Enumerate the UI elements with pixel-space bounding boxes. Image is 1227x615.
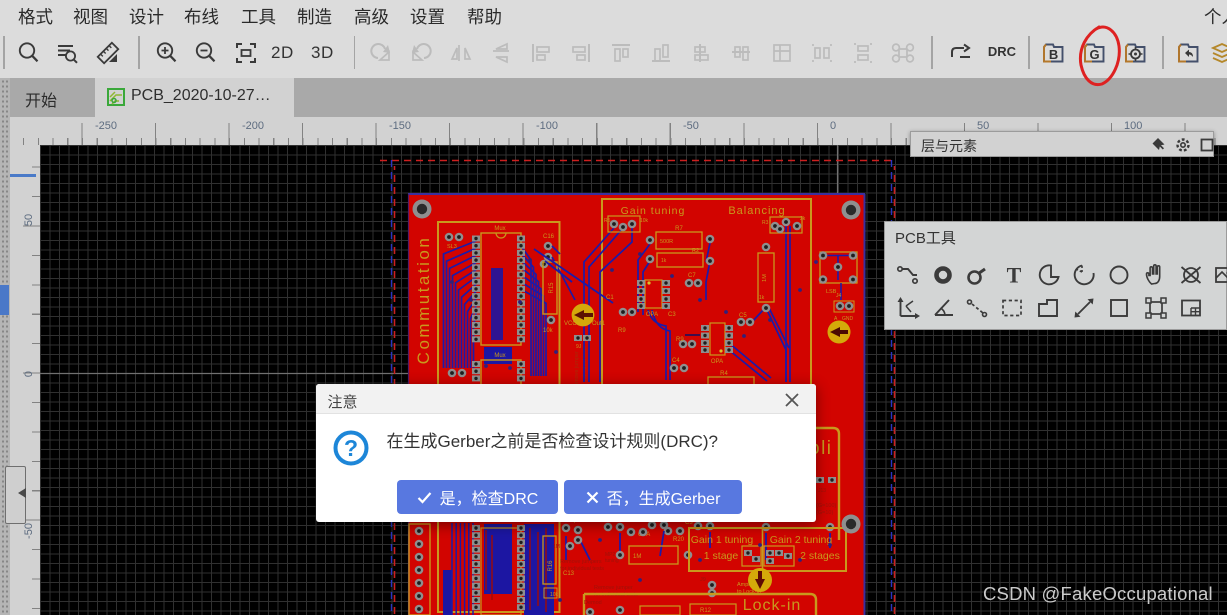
svg-text:R15: R15	[549, 282, 555, 294]
svg-text:R7: R7	[675, 226, 683, 232]
svg-text:?: ?	[343, 435, 357, 461]
svg-text:(G=100): (G=100)	[816, 503, 836, 509]
svg-text:10k: 10k	[640, 218, 649, 224]
svg-text:C3: C3	[668, 312, 676, 318]
svg-text:J13: J13	[818, 488, 826, 494]
svg-text:1M: 1M	[633, 554, 641, 560]
svg-text:C16: C16	[543, 234, 555, 240]
svg-text:R5: R5	[604, 218, 611, 224]
svg-text:1M: 1M	[762, 274, 768, 282]
svg-text:R4: R4	[720, 371, 728, 377]
svg-text:R3: R3	[762, 220, 769, 226]
svg-text:(G=10): (G=10)	[816, 510, 833, 516]
svg-text:2k: 2k	[800, 216, 806, 222]
svg-text:Balancing: Balancing	[728, 205, 785, 217]
svg-text:Gain 1 tuning: Gain 1 tuning	[691, 534, 754, 546]
svg-text:10k: 10k	[550, 592, 559, 598]
svg-text:OPA: OPA	[646, 312, 658, 318]
svg-text:Out1: Out1	[592, 321, 606, 327]
svg-text:Remove jumper: Remove jumper	[594, 585, 633, 591]
svg-text:R2: R2	[692, 248, 699, 254]
svg-text:VCC: VCC	[564, 321, 577, 327]
svg-text:Ampl: Ampl	[737, 582, 750, 588]
svg-text:1k: 1k	[661, 258, 667, 264]
svg-text:C13: C13	[563, 571, 575, 577]
svg-text:GND: GND	[842, 316, 854, 322]
svg-text:Demod: Demod	[584, 600, 602, 606]
svg-text:9J: 9J	[576, 344, 582, 350]
svg-text:Lock-in: Lock-in	[743, 597, 802, 614]
svg-text:SL3: SL3	[447, 244, 457, 250]
svg-text:OPA: OPA	[711, 359, 723, 365]
svg-text:1k: 1k	[759, 295, 765, 301]
svg-text:T: T	[1007, 263, 1022, 288]
svg-text:Commutation: Commutation	[414, 236, 433, 365]
svg-text:R16: R16	[548, 560, 554, 572]
svg-text:2 stages: 2 stages	[800, 550, 840, 562]
svg-text:J9: J9	[700, 577, 706, 583]
svg-text:C1: C1	[606, 295, 614, 301]
svg-text:R9: R9	[676, 337, 684, 343]
svg-text:Mux: Mux	[494, 353, 505, 359]
svg-text:B: B	[1049, 47, 1058, 62]
svg-text:C4: C4	[672, 358, 680, 364]
svg-text:C7: C7	[688, 273, 696, 279]
svg-text:500R: 500R	[660, 239, 673, 245]
svg-text:R9: R9	[618, 328, 626, 334]
svg-text:Mux: Mux	[494, 226, 505, 232]
svg-text:1 stage: 1 stage	[704, 550, 739, 562]
svg-text:Gain tuning: Gain tuning	[621, 205, 686, 217]
svg-text:tuning: tuning	[605, 558, 619, 564]
svg-text:10k: 10k	[543, 328, 554, 334]
svg-text:R20: R20	[673, 537, 685, 543]
svg-text:1M: 1M	[553, 544, 560, 550]
svg-text:R12: R12	[700, 608, 712, 614]
svg-text:Gain 2 tuning: Gain 2 tuning	[770, 534, 833, 546]
svg-text:J4: J4	[836, 293, 842, 299]
